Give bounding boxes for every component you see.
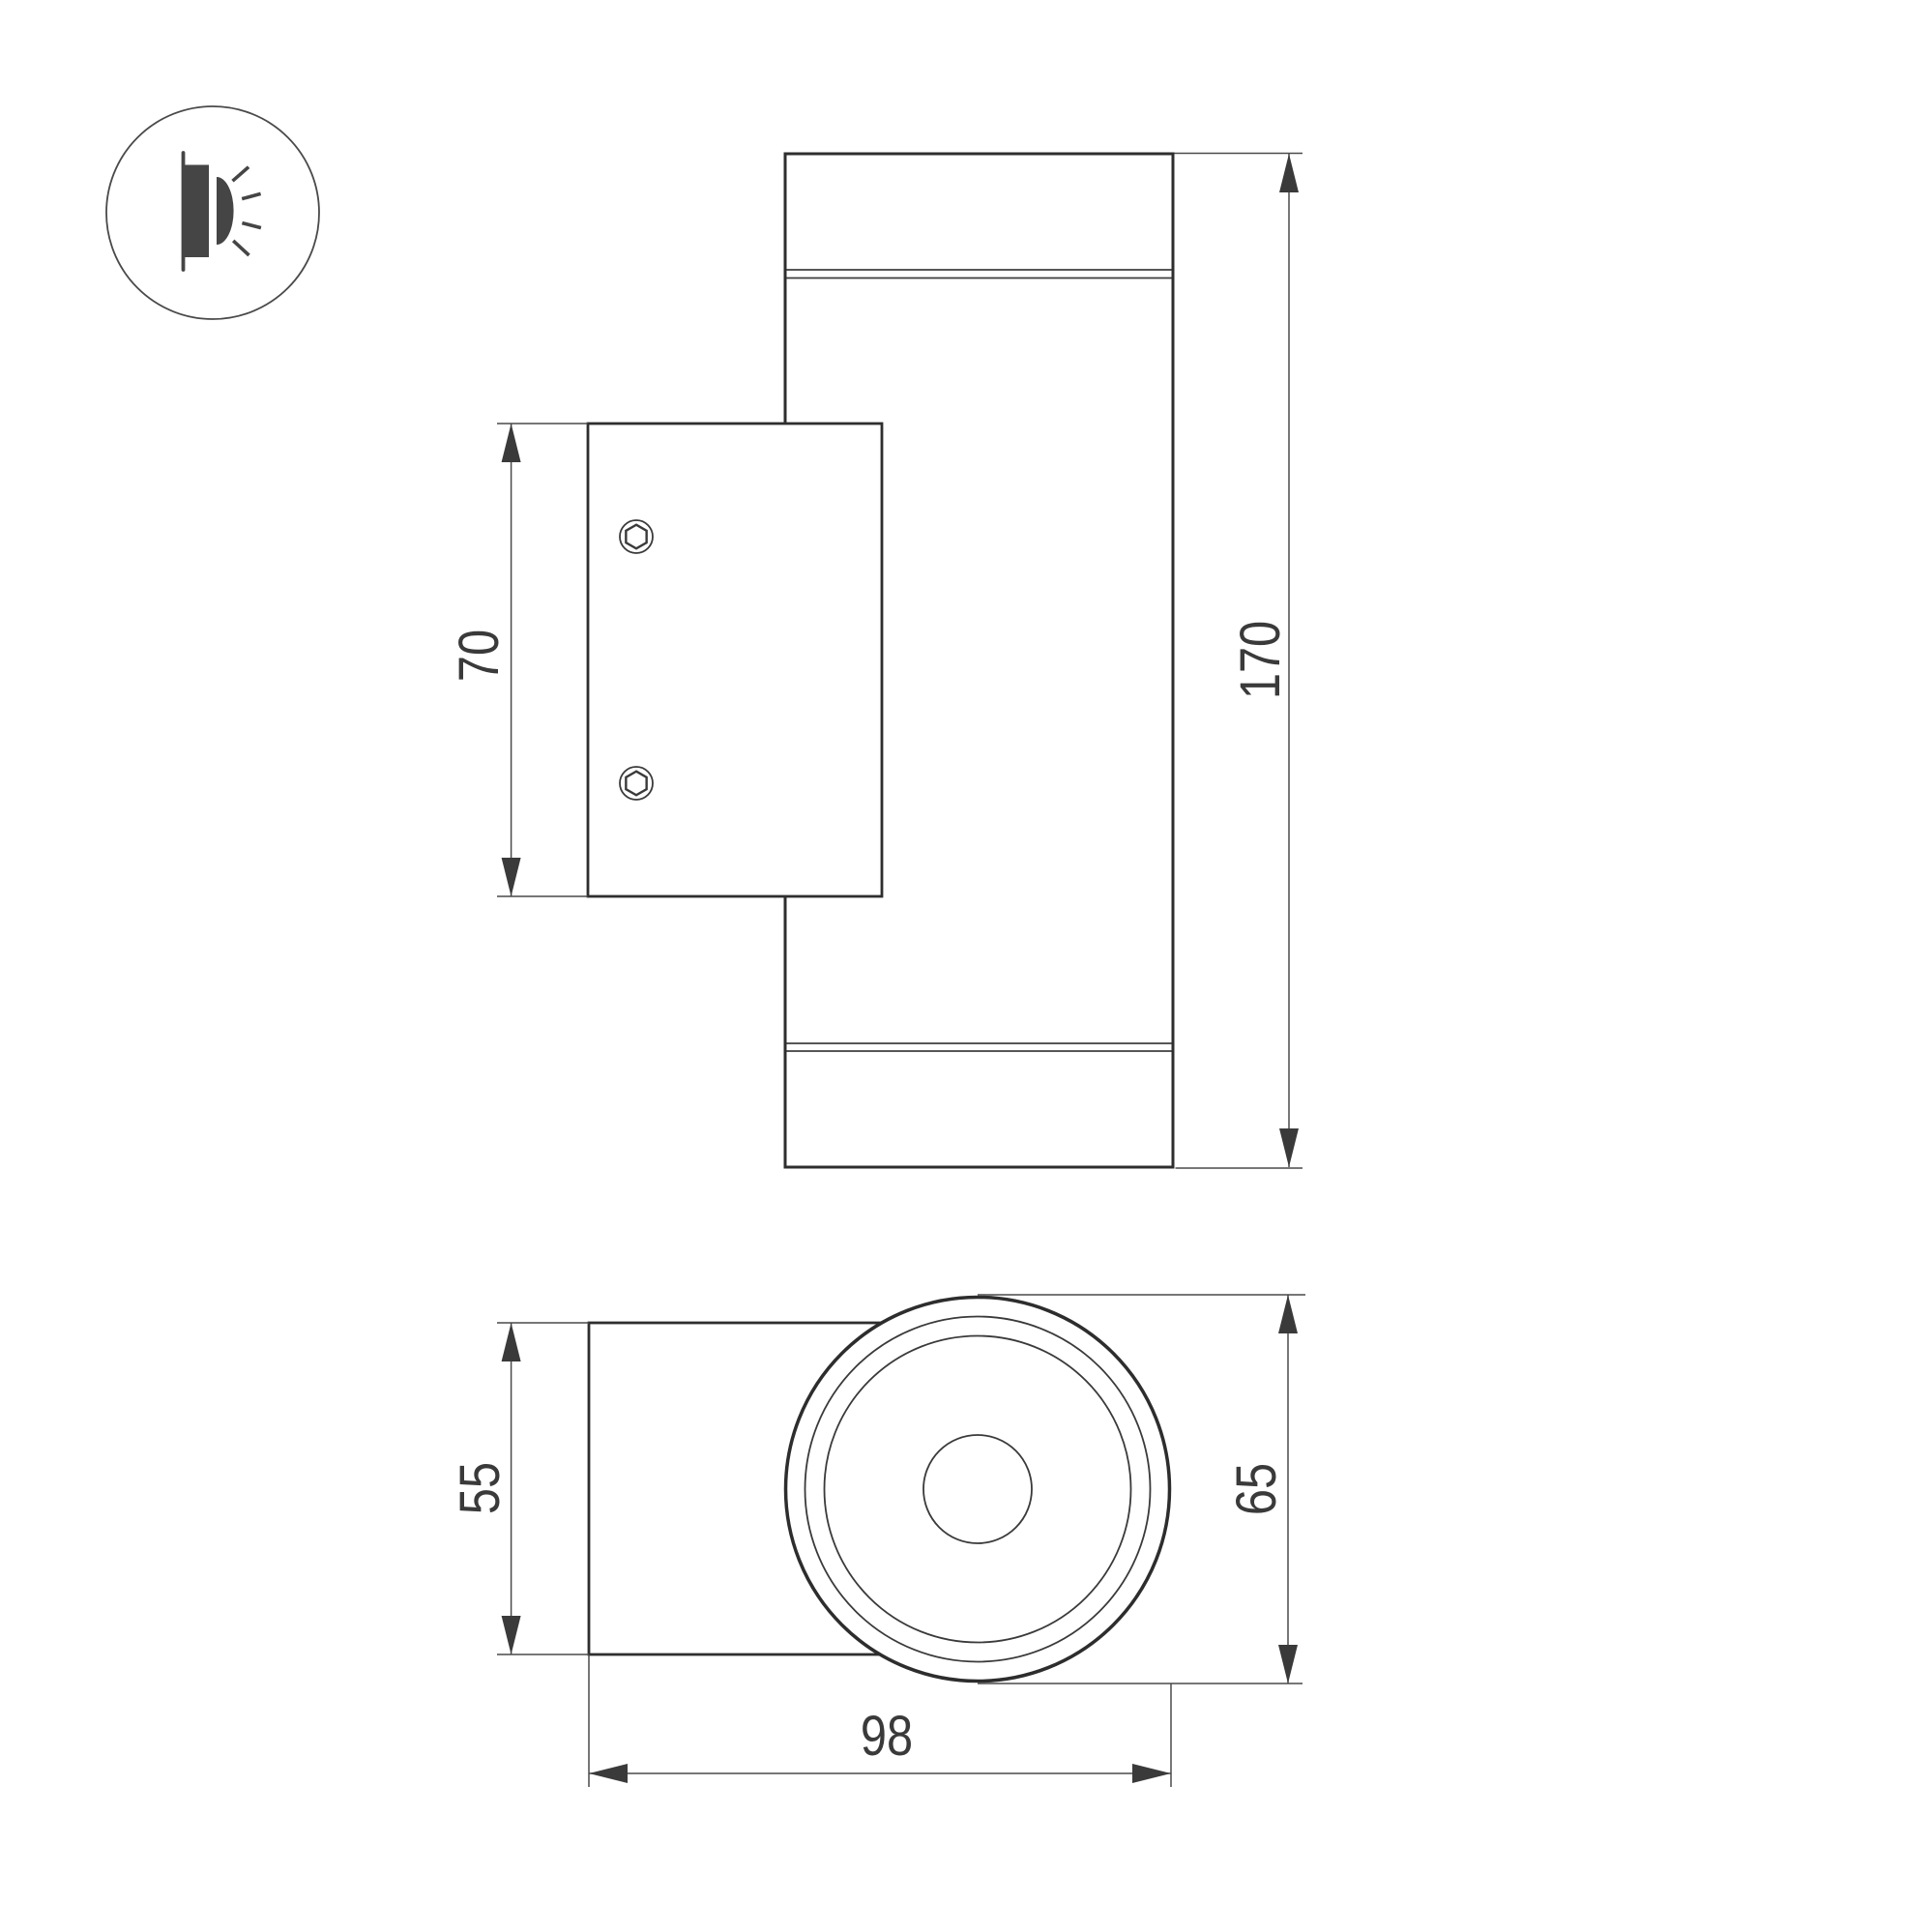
- svg-text:65: 65: [1226, 1463, 1288, 1515]
- svg-text:55: 55: [450, 1462, 512, 1514]
- svg-text:70: 70: [449, 629, 511, 682]
- svg-text:170: 170: [1230, 621, 1292, 699]
- svg-text:98: 98: [861, 1706, 913, 1768]
